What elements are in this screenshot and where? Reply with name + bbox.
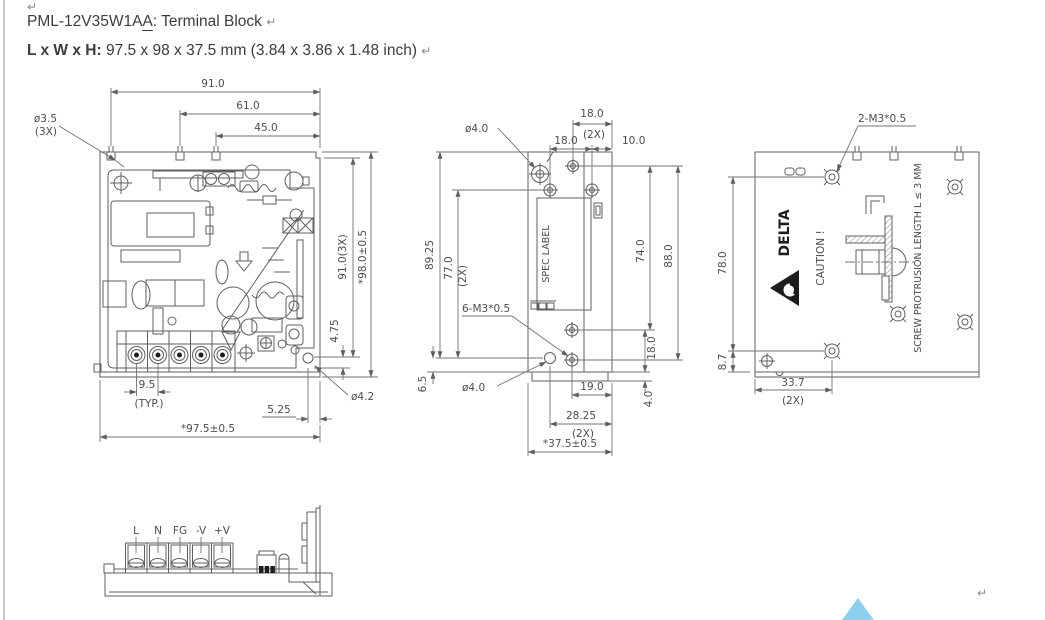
dim-6-5: 6.5 [417, 376, 429, 393]
chassis-hole-4-2 [303, 353, 313, 363]
front-view: 91.0 61.0 45.0 ø3.5 (3X) 91.0(3X) *98.0±… [34, 78, 378, 442]
hole-4-0-bottom [545, 353, 556, 364]
label-hole-4-0-bottom: ø4.0 [462, 382, 485, 394]
dim-18-right: 18.0 [646, 336, 658, 359]
side-view: SPEC LABEL ø4.0 18.0 (2X) 18.0 10.0 8 [417, 108, 683, 456]
terminal-screw [150, 347, 167, 364]
dim-97-5: *97.5±0.5 [181, 423, 235, 435]
pcb-assembly [103, 165, 314, 372]
dim-91: 91.0 [201, 78, 224, 90]
base-plate [104, 564, 332, 596]
dim-5-25: 5.25 [267, 404, 290, 416]
corner-hole [759, 353, 775, 369]
back-view: DELTA CAUTION ! SCREW PROTRUSION LENGTH … [717, 113, 979, 407]
dim-89-25: 89.25 [424, 240, 436, 270]
dim-74: 74.0 [635, 239, 647, 262]
pin-labels: L N FG -V +V [133, 525, 231, 553]
dim-37-5: *37.5±0.5 [543, 438, 597, 450]
dim-19: 19.0 [580, 381, 603, 393]
flange-hole-4-0 [529, 163, 551, 185]
dim-8-7: 8.7 [717, 354, 729, 371]
terminal-screw [128, 347, 145, 364]
dim-61: 61.0 [236, 100, 259, 112]
dim-18-2x-qty: (2X) [583, 129, 605, 141]
dim-4-75: 4.75 [329, 319, 341, 342]
dim-77: 77.0 [443, 256, 455, 279]
label-thread-6-m3: 6-M3*0.5 [462, 303, 510, 315]
thread-hole [542, 182, 558, 198]
dim-77-qty: (2X) [457, 265, 469, 287]
dim-88: 88.0 [663, 244, 675, 267]
label-hole-3-5-qty: (3X) [35, 126, 57, 138]
pin-label-L: L [133, 525, 139, 537]
terminal-side-view: L N FG -V +V [104, 505, 332, 596]
dim-33-7-qty: (2X) [782, 395, 804, 407]
label-hole-4-2: ø4.2 [351, 391, 374, 403]
label-hole-3-5: ø3.5 [34, 113, 57, 125]
nut-hole [824, 169, 840, 185]
paragraph-mark: ↵ [977, 586, 987, 600]
dim-45: 45.0 [254, 122, 277, 134]
datasheet-page: ↵ PML-12V35W1AA: Terminal Block ↵ L x W … [0, 0, 1045, 620]
caution-text: CAUTION ! [815, 230, 827, 285]
pcb-mount-hole [237, 344, 255, 362]
thread-hole [565, 158, 581, 174]
front-dimensions: 91.0 61.0 45.0 ø3.5 (3X) 91.0(3X) *98.0±… [34, 78, 378, 442]
dim-33-7: 33.7 [781, 377, 804, 389]
page-bottom-triangle-shape [842, 598, 874, 620]
capacitor [256, 282, 294, 320]
dim-28-25: 28.25 [566, 410, 596, 422]
pcb-mount-hole [110, 172, 132, 194]
side-holes [529, 158, 600, 368]
nut-hole [890, 306, 906, 322]
dim-typ: (TYP.) [134, 398, 163, 410]
spec-label-text: SPEC LABEL [541, 225, 552, 283]
terminal-strip [117, 331, 235, 372]
nut-hole [957, 314, 973, 330]
dim-9-5: 9.5 [139, 379, 156, 391]
thread-hole [584, 182, 600, 198]
dim-4-0: 4.0 [643, 391, 655, 408]
pin-label-FG: FG [173, 525, 187, 537]
potentiometer [258, 336, 286, 351]
spec-label-area: SPEC LABEL [530, 198, 602, 310]
pin-label-minusV: -V [196, 525, 207, 537]
terminal-screw [171, 347, 188, 364]
pin-label-N: N [154, 525, 162, 537]
nut-hole [947, 179, 963, 195]
label-thread-2-m3: 2-M3*0.5 [858, 113, 906, 125]
label-hole-4-0-top: ø4.0 [465, 123, 488, 135]
terminal-screw [193, 347, 210, 364]
pin-label-plusV: +V [214, 525, 231, 537]
side-components [257, 551, 289, 573]
dim-18: 18.0 [554, 135, 577, 147]
screw-protrusion-note: SCREW PROTRUSION LENGTH L ≤ 3 MM [913, 163, 924, 352]
dim-18-2x: 18.0 [580, 108, 603, 120]
terminal-screw [214, 347, 231, 364]
technical-drawing: 91.0 61.0 45.0 ø3.5 (3X) 91.0(3X) *98.0±… [0, 0, 1045, 620]
screw-illustration [845, 196, 914, 302]
dim-91-3x: 91.0(3X) [337, 234, 349, 279]
nut-hole [824, 343, 840, 359]
dim-10: 10.0 [622, 135, 645, 147]
dim-98: *98.0±0.5 [357, 230, 369, 284]
delta-logo: DELTA [770, 209, 799, 306]
thread-hole [564, 322, 580, 338]
brand-text: DELTA [777, 209, 793, 256]
pcb-components [103, 165, 313, 354]
side-bracket [289, 505, 320, 596]
dim-78: 78.0 [717, 251, 729, 274]
